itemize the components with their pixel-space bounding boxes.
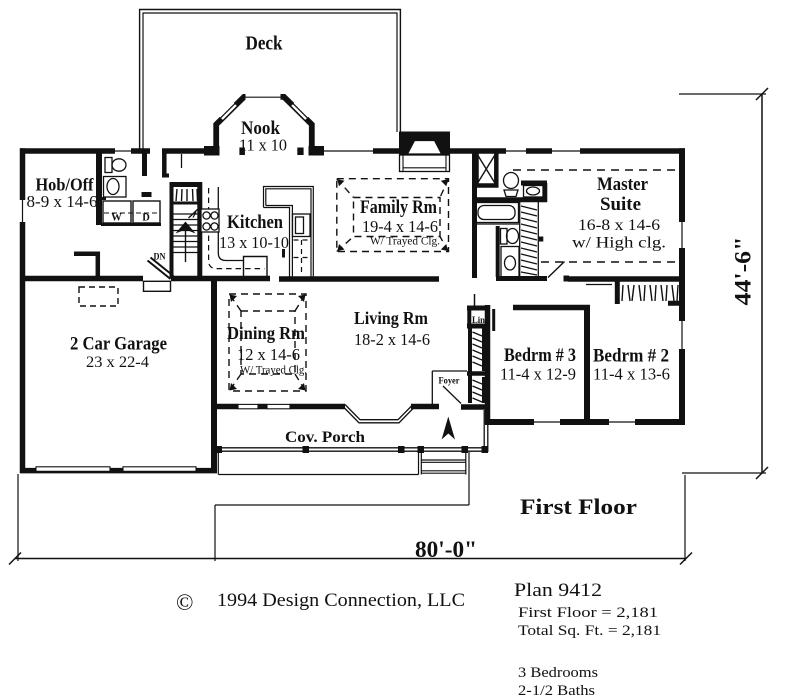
svg-text:1994 Design Connection, LLC: 1994 Design Connection, LLC	[217, 590, 465, 611]
svg-text:W/ Trayed Clg.: W/ Trayed Clg.	[240, 363, 307, 377]
svg-text:w/ High clg.: w/ High clg.	[572, 235, 666, 252]
svg-text:Foyer: Foyer	[439, 377, 461, 387]
svg-text:Bedrm # 2: Bedrm # 2	[593, 347, 669, 367]
svg-text:80'-0": 80'-0"	[415, 537, 477, 562]
svg-text:Master: Master	[597, 174, 648, 195]
svg-text:©: ©	[176, 590, 193, 615]
svg-text:Deck: Deck	[246, 33, 284, 55]
svg-text:Plan 9412: Plan 9412	[514, 580, 602, 601]
svg-text:DN: DN	[154, 252, 166, 262]
svg-text:W: W	[111, 213, 122, 224]
svg-text:3 Bedrooms: 3 Bedrooms	[518, 665, 598, 681]
svg-text:16-8 x 14-6: 16-8 x 14-6	[578, 217, 660, 234]
svg-text:First Floor = 2,181: First Floor = 2,181	[518, 605, 658, 621]
svg-text:11-4 x 12-9: 11-4 x 12-9	[500, 365, 576, 384]
svg-text:Suite: Suite	[600, 194, 641, 215]
svg-text:44'-6": 44'-6"	[731, 237, 756, 306]
svg-text:D: D	[142, 213, 150, 224]
svg-text:Cov. Porch: Cov. Porch	[285, 429, 365, 446]
svg-text:Kitchen: Kitchen	[227, 212, 283, 233]
svg-text:Family Rm: Family Rm	[360, 197, 437, 218]
svg-text:Dining Rm: Dining Rm	[227, 323, 305, 343]
svg-text:Living Rm: Living Rm	[354, 308, 428, 328]
svg-text:First Floor: First Floor	[520, 494, 637, 519]
svg-text:11 x 10: 11 x 10	[239, 136, 287, 155]
svg-text:8-9 x 14-6: 8-9 x 14-6	[27, 192, 98, 211]
svg-text:Bedrm # 3: Bedrm # 3	[504, 346, 576, 366]
svg-text:Lin: Lin	[472, 315, 485, 325]
svg-text:18-2 x 14-6: 18-2 x 14-6	[354, 330, 430, 349]
svg-text:13 x 10-10: 13 x 10-10	[219, 233, 289, 252]
svg-text:W/ Trayed Clg.: W/ Trayed Clg.	[370, 234, 440, 248]
svg-text:Total Sq. Ft. = 2,181: Total Sq. Ft. = 2,181	[518, 623, 661, 639]
svg-text:12 x 14-6: 12 x 14-6	[237, 345, 300, 364]
svg-text:23 x 22-4: 23 x 22-4	[86, 354, 149, 371]
svg-text:2 Car Garage: 2 Car Garage	[70, 334, 167, 355]
svg-text:11-4 x 13-6: 11-4 x 13-6	[593, 365, 670, 384]
svg-text:2-1/2 Baths: 2-1/2 Baths	[518, 683, 595, 699]
